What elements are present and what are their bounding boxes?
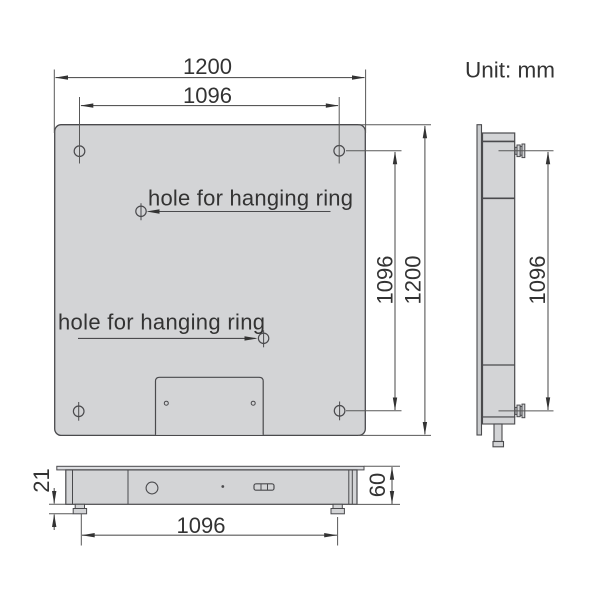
svg-text:60: 60 bbox=[365, 473, 390, 497]
svg-text:hole for hanging ring: hole for hanging ring bbox=[148, 186, 353, 211]
svg-text:1096: 1096 bbox=[177, 513, 226, 538]
svg-text:1096: 1096 bbox=[525, 256, 550, 305]
svg-text:Unit: mm: Unit: mm bbox=[465, 58, 555, 83]
svg-text:hole for hanging ring: hole for hanging ring bbox=[58, 310, 265, 335]
svg-text:1200: 1200 bbox=[183, 54, 232, 79]
svg-text:1200: 1200 bbox=[400, 256, 425, 305]
svg-text:1096: 1096 bbox=[183, 83, 232, 108]
svg-text:1096: 1096 bbox=[373, 256, 398, 305]
svg-text:21: 21 bbox=[29, 468, 54, 492]
